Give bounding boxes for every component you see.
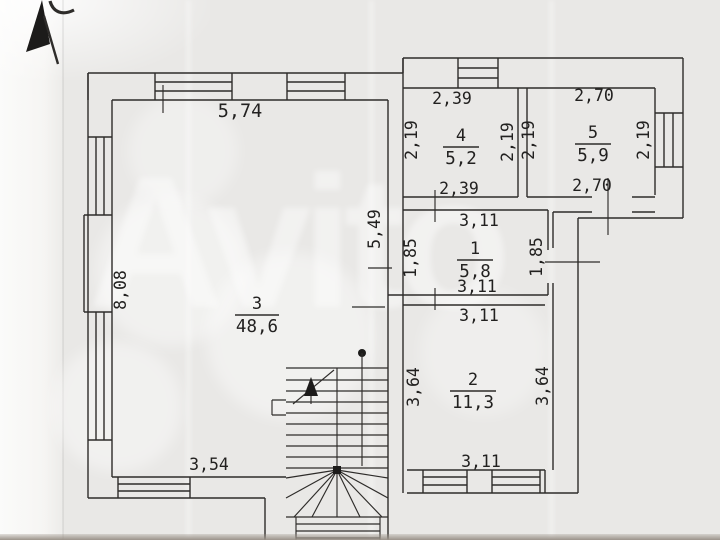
room4-number: 4 bbox=[456, 126, 466, 146]
room2-number: 2 bbox=[468, 370, 478, 390]
dim-room4-bottom: 2,39 bbox=[439, 179, 479, 198]
dim-room1-left: 1,85 bbox=[401, 238, 420, 278]
dim-room2-left: 3,64 bbox=[404, 367, 423, 407]
room-labels: 3 48,6 4 5,2 5 5,9 1 5,8 2 bbox=[235, 123, 611, 413]
room-label-1: 1 5,8 bbox=[457, 239, 493, 282]
room-label-2: 2 11,3 bbox=[450, 370, 496, 413]
room-label-4: 4 5,2 bbox=[443, 126, 479, 169]
dim-room5-right: 2,19 bbox=[634, 120, 653, 160]
room4-area: 5,2 bbox=[445, 149, 477, 169]
dim-room2-right: 3,64 bbox=[533, 366, 552, 406]
room2-area: 11,3 bbox=[452, 393, 494, 413]
stair-direction-arrow-icon bbox=[293, 370, 334, 404]
dim-room5-left: 2,19 bbox=[519, 120, 538, 160]
dim-room2-bottom: 3,11 bbox=[461, 452, 501, 471]
dim-room4-right: 2,19 bbox=[498, 122, 517, 162]
room3-number: 3 bbox=[252, 294, 262, 314]
dim-room1-top: 3,11 bbox=[459, 211, 499, 230]
room1-number: 1 bbox=[470, 239, 480, 259]
room5-number: 5 bbox=[588, 123, 598, 143]
dim-room5-bottom: 2,70 bbox=[572, 176, 612, 195]
dimension-labels: 5,74 2,39 2,70 2,39 2,70 3,11 3,11 3,11 … bbox=[111, 86, 653, 474]
dim-room4-top: 2,39 bbox=[432, 89, 472, 108]
dim-room4-left: 2,19 bbox=[402, 120, 421, 160]
photo-bottom-edge bbox=[0, 534, 720, 540]
dim-room5-top: 2,70 bbox=[574, 86, 614, 105]
room5-area: 5,9 bbox=[577, 146, 609, 166]
dim-room3-bottom: 3,54 bbox=[189, 455, 229, 474]
dim-hall-left: 5,49 bbox=[365, 209, 384, 249]
dim-room3-top: 5,74 bbox=[218, 101, 263, 122]
floor-plan-drawing: 5,74 2,39 2,70 2,39 2,70 3,11 3,11 3,11 … bbox=[0, 0, 720, 540]
room3-area: 48,6 bbox=[236, 317, 278, 337]
dim-room3-left: 8,08 bbox=[111, 270, 130, 310]
staircase bbox=[272, 349, 388, 540]
room-label-5: 5 5,9 bbox=[575, 123, 611, 166]
room1-area: 5,8 bbox=[459, 262, 491, 282]
room-label-3: 3 48,6 bbox=[235, 294, 279, 337]
north-arrow-icon bbox=[26, 0, 74, 64]
floor-plan-photo: Avito bbox=[0, 0, 720, 540]
dim-room2-top: 3,11 bbox=[459, 306, 499, 325]
dim-room1-right: 1,85 bbox=[527, 237, 546, 277]
